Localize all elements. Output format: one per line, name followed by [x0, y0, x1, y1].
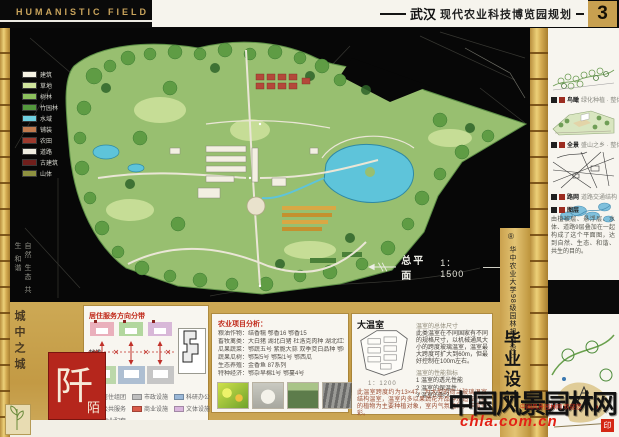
legend-chip-label: 科研办公: [186, 392, 210, 401]
plant-sketch-box: [5, 404, 31, 435]
legend-swatch: [22, 159, 37, 166]
aerial-sketch: [551, 56, 616, 92]
photo-livestock: [252, 382, 284, 409]
plan-scale: 1：1500: [440, 256, 478, 279]
legend-label: 水域: [40, 114, 52, 123]
page-number-badge: 3: [588, 1, 617, 27]
agriculture-line: 蔬果瓜树：鄂梨5号 鄂梨1号 鄂西瓜: [218, 354, 344, 362]
greenhouse-scale: 1：1200: [368, 378, 397, 387]
caption-square-icon: [551, 142, 557, 148]
legend-chip-label: 文体设施: [186, 404, 210, 413]
building-footprint-card: [178, 328, 206, 374]
legend-row: 道路: [22, 147, 58, 156]
agriculture-title: 农业项目分析：: [218, 319, 267, 329]
legend-chip-label: 市政设施: [144, 392, 168, 401]
footprint-shape: [179, 329, 203, 371]
perspective-sketch: [551, 105, 616, 137]
legend-row: 古建筑: [22, 158, 58, 167]
legend-row: 竹园林: [22, 103, 58, 112]
legend-swatch: [22, 93, 37, 100]
legend-swatch: [22, 115, 37, 122]
legend-swatch: [22, 82, 37, 89]
zoning-legend-item: 市政设施: [132, 392, 168, 401]
sketch-caption: 鸟瞰 绿化种植 · 整体鸟瞰: [551, 95, 619, 104]
summary-tag: 图层: [567, 205, 579, 214]
legend-row: 山体: [22, 169, 58, 178]
greenhouse-paragraph: 此类温室在不同国家有不同的规格尺寸，以机械通风大小的跨度玻璃温室，温室最大跨度可…: [416, 331, 488, 366]
summary-text: 由植被层、悬浮层、水体、道路9层叠加在一起构成了这个平面图，达到自然、生态、和谐…: [551, 216, 615, 256]
watermark-url: chla.com.cn: [460, 413, 558, 430]
legend-chip-label: 商业设施: [144, 404, 168, 413]
legend-chip: [132, 394, 142, 400]
bottom-margin-strip: [10, 420, 530, 437]
legend-row: 水域: [22, 114, 58, 123]
photo-crops: [217, 382, 249, 409]
seal-character-small: 陌: [87, 397, 100, 416]
title-right-rule: [576, 13, 584, 15]
agriculture-list: 粮油作物：结香糯 鄂香16 鄂香15 畜牧禽类：大白猪 湖北白猪 杜洛克肉种 湖…: [218, 330, 344, 378]
legend-label: 铺装: [40, 125, 52, 134]
leaf-icon: [6, 405, 28, 432]
caption-square-icon: [559, 207, 565, 213]
sketch-text: 盛山之乡 · 整体全景: [581, 140, 619, 149]
zoning-legend-item: 科研办公: [174, 392, 210, 401]
agriculture-line: 粮油作物：结香糯 鄂香16 鄂香15: [218, 330, 344, 338]
legend-chip: [132, 406, 142, 412]
legend-row: 建筑: [22, 70, 58, 79]
left-bamboo-strip: [0, 28, 10, 437]
sketch-tag: 全景: [567, 140, 579, 149]
legend-label: 建筑: [40, 70, 52, 79]
legend-label: 草地: [40, 81, 52, 90]
program-label: HUMANISTIC FIELD: [16, 7, 149, 17]
registered-mark: ®: [508, 232, 514, 241]
sketch-tag: 鸟瞰: [567, 95, 579, 104]
legend-swatch: [22, 71, 37, 78]
city-motto: 城中之城: [11, 310, 27, 380]
photo-fishpond: [322, 382, 354, 409]
analysis-column: 鸟瞰 绿化种植 · 整体鸟瞰 全景 盛山之乡 · 整体全景: [548, 28, 619, 437]
caption-square-icon: [559, 142, 565, 148]
calligraphy-seal: 阡 陌: [48, 352, 106, 420]
legend-row: 树林: [22, 92, 58, 101]
right-bamboo-strip: [530, 28, 548, 437]
legend-label: 道路: [40, 147, 52, 156]
header-bar: HUMANISTIC FIELD 武汉 现代农业科技博览园规划 3: [0, 0, 619, 28]
sketch-caption: 全景 盛山之乡 · 整体全景: [551, 140, 619, 149]
legend-swatch: [22, 104, 37, 111]
agriculture-panel: 农业项目分析： 粮油作物：结香糯 鄂香16 鄂香15 畜牧禽类：大白猪 湖北白猪…: [212, 314, 348, 412]
zoning-legend-item: 文体设施: [174, 404, 210, 413]
agriculture-line: 特种经济：鄂杂早棉1号 鄂蔓4号: [218, 370, 344, 378]
caption-square-icon: [551, 97, 557, 103]
sketch-text: 绿化种植 · 整体鸟瞰: [581, 95, 619, 104]
legend-row: 铺装: [22, 125, 58, 134]
legend-label: 农田: [40, 136, 52, 145]
north-arrow-icon: [368, 261, 396, 273]
design-motto: 自然 生态 共生 和谐: [12, 242, 32, 300]
photo-strip: [217, 382, 354, 409]
master-plan-area: 建筑 草地 树林 竹园林 水域 铺装 农田 道路 古建筑 山体 自然 生态 共生…: [10, 28, 530, 302]
black-divider-band: [548, 280, 619, 314]
watermark-seal-icon: 印: [601, 419, 614, 432]
road-network-sketch: [551, 150, 616, 190]
agriculture-line: 瓜果蔬菜：鄂蔬五号 紫脆大蒜 双季茭白品种 鄂椒 成菜: [218, 346, 344, 354]
zoning-legend-item: 商业设施: [132, 404, 168, 413]
layer-summary: 图层 由植被层、悬浮层、水体、道路9层叠加在一起构成了这个平面图，达到自然、生态…: [551, 205, 615, 256]
presentation-board: HUMANISTIC FIELD 武汉 现代农业科技博览园规划 3: [0, 0, 619, 437]
greenhouse-subhead: 温室的性能指标: [416, 368, 488, 377]
city-name: 武汉: [410, 4, 436, 23]
legend-swatch: [22, 170, 37, 177]
legend-chip: [174, 394, 184, 400]
legend-label: 树林: [40, 92, 52, 101]
legend-label: 竹园林: [40, 103, 58, 112]
caption-square-icon: [551, 207, 557, 213]
greenhouse-subhead: 温室的总体尺寸: [416, 321, 488, 330]
agriculture-line: 畜牧禽类：大白猪 湖北白猪 杜洛克肉种 湖北红鸡 金水乌鸡: [218, 338, 344, 346]
legend-row: 农田: [22, 136, 58, 145]
legend-swatch: [22, 137, 37, 144]
agriculture-line: 生态养殖：金香鱼 87系列: [218, 362, 344, 370]
watermark-credit: 中国风景园林网 欢迎您: [520, 402, 582, 411]
greenhouse-plan-drawing: [354, 328, 414, 378]
legend-row: 草地: [22, 81, 58, 90]
caption-square-icon: [559, 97, 565, 103]
legend-swatch: [22, 126, 37, 133]
page-title: 现代农业科技博览园规划: [440, 6, 572, 22]
legend-chip: [174, 406, 184, 412]
map-legend: 建筑 草地 树林 竹园林 水域 铺装 农田 道路 古建筑 山体: [22, 70, 58, 180]
legend-swatch: [22, 148, 37, 155]
header-underline: [0, 20, 152, 22]
header-title-row: 武汉 现代农业科技博览园规划: [380, 4, 584, 23]
summary-caption: 图层: [551, 205, 615, 214]
legend-label: 山体: [40, 169, 52, 178]
plan-label: 总平面: [401, 252, 435, 282]
title-left-rule: [380, 13, 406, 15]
legend-label: 古建筑: [40, 158, 58, 167]
photo-field: [287, 382, 319, 409]
header-title-band: 武汉 现代农业科技博览园规划: [152, 0, 588, 27]
